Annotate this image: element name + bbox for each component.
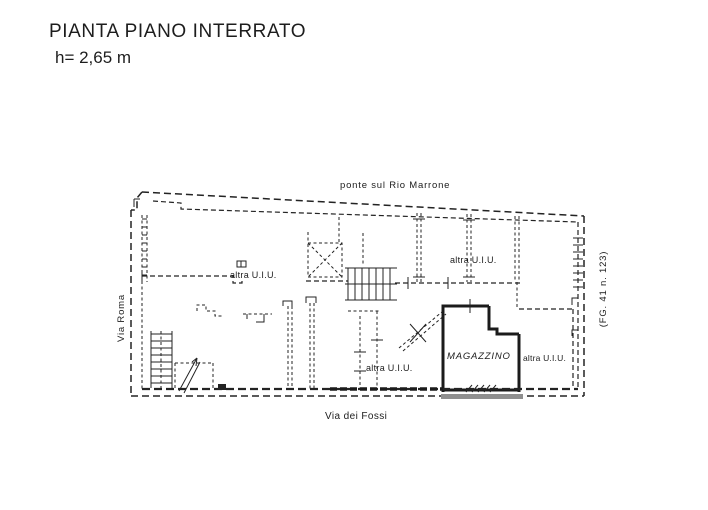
floor-plan-drawing: ponte sul Rio Marrone altra U.I.U. altra… [0, 0, 708, 510]
outer-boundary [131, 192, 584, 396]
corridor-walls [306, 277, 520, 289]
street-bottom-label: Via dei Fossi [325, 411, 387, 422]
magazzino-label: MAGAZZINO [447, 351, 511, 362]
street-left-label: Via Roma [116, 294, 127, 342]
ramp-diagonal [399, 311, 446, 351]
left-inner-wall [142, 215, 147, 389]
lower-room-partitions [283, 297, 383, 389]
magazzino-room [441, 299, 523, 399]
main-staircase [345, 268, 397, 300]
magazzino-shadow-bar [441, 394, 523, 399]
bottom-right-unit [519, 309, 573, 389]
bridge-label: ponte sul Rio Marrone [340, 180, 450, 191]
wall-fragments [197, 305, 272, 322]
unit-label-bottommiddle: altra U.I.U. [366, 363, 413, 373]
unit-label-topleft: altra U.I.U. [230, 270, 277, 280]
unit-label-topright: altra U.I.U. [450, 255, 497, 265]
right-inner-wall [572, 222, 583, 389]
unit-label-bottomright: altra U.I.U. [523, 353, 566, 363]
cadastral-ref-label: (FG. 41 n. 123) [598, 251, 609, 327]
left-staircase [151, 331, 213, 393]
floorplan-page: PIANTA PIANO INTERRATO h= 2,65 m [0, 0, 708, 510]
